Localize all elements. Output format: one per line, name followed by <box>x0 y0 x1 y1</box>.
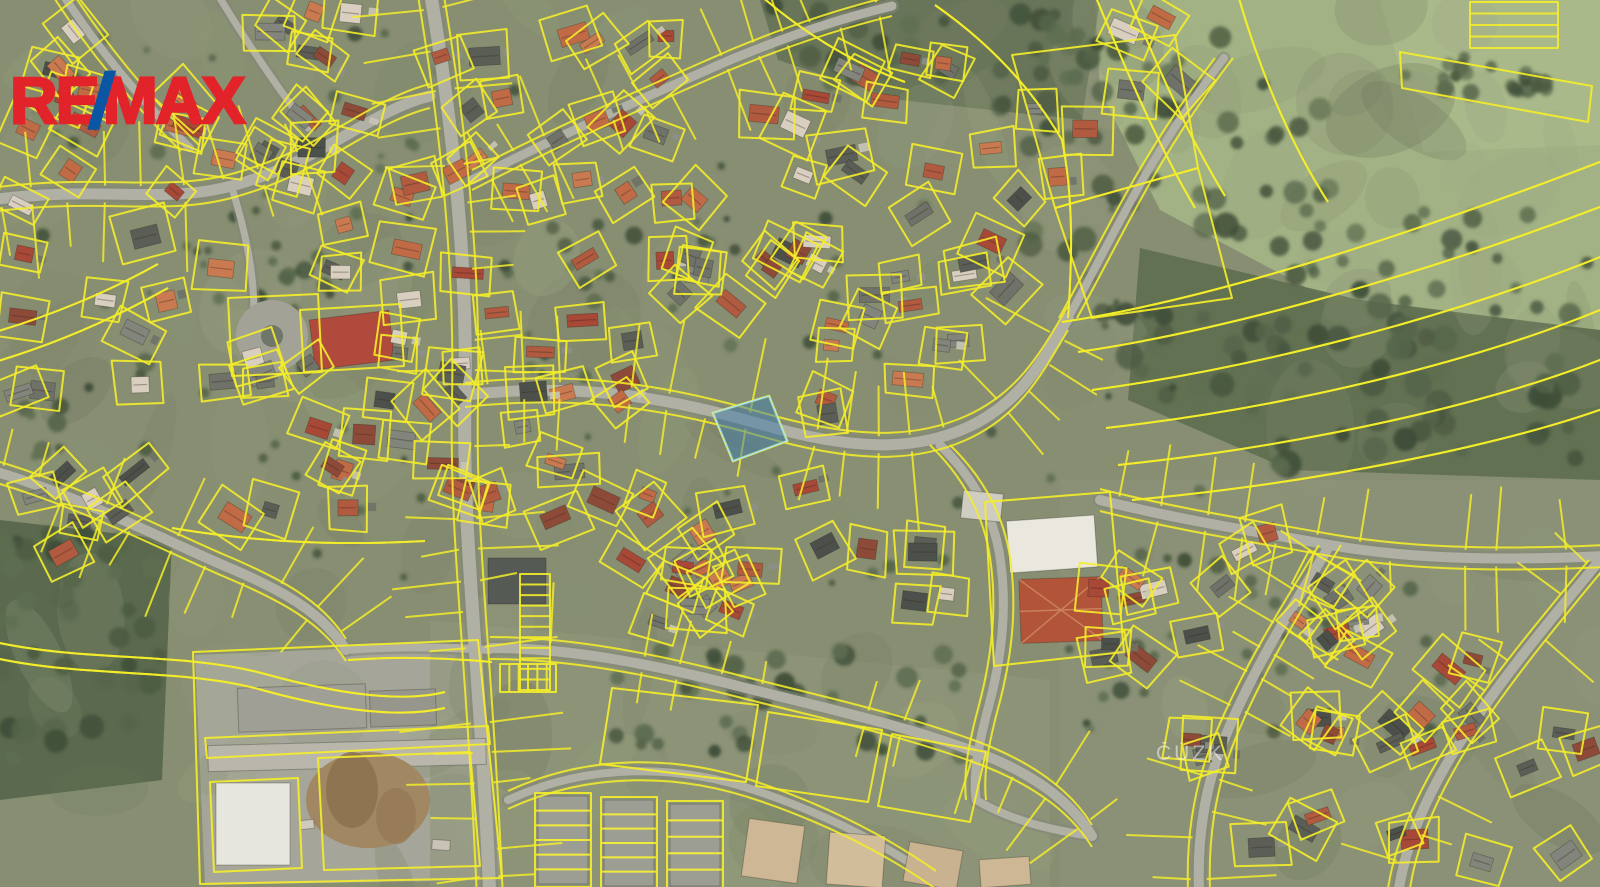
house <box>387 430 416 450</box>
house <box>908 543 937 561</box>
house <box>621 331 643 351</box>
house <box>330 265 350 279</box>
house <box>491 88 513 108</box>
house <box>485 306 510 319</box>
logo-max: MAX <box>103 67 244 133</box>
house <box>892 371 924 388</box>
house <box>131 376 149 393</box>
house <box>514 419 531 434</box>
logo-re: RE <box>10 67 98 133</box>
cuzk-watermark: ČÚZK <box>1156 742 1225 766</box>
house <box>207 258 235 278</box>
remax-logo: RE/MAX <box>10 60 243 136</box>
house <box>935 56 952 71</box>
house <box>980 141 1003 154</box>
house <box>352 424 375 445</box>
listing-map-image[interactable]: RE/MAX ČÚZK <box>0 0 1600 887</box>
house <box>1072 120 1097 138</box>
house <box>567 313 598 327</box>
house <box>856 538 878 560</box>
house <box>901 591 928 612</box>
